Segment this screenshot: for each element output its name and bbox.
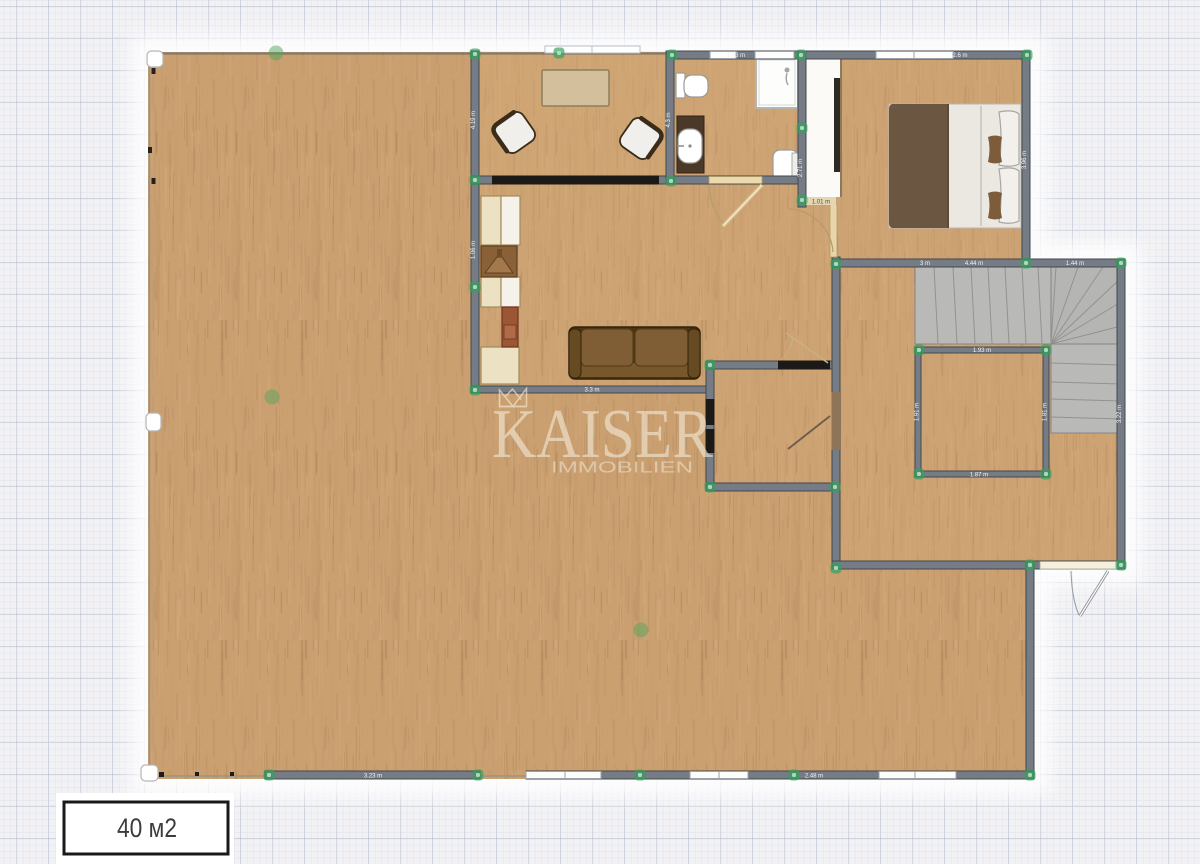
svg-text:1.93 m: 1.93 m (973, 348, 991, 354)
svg-text:1.06 m: 1.06 m (471, 241, 477, 259)
svg-text:4.44 m: 4.44 m (965, 261, 983, 267)
svg-text:1.91 m: 1.91 m (915, 403, 921, 421)
svg-text:4.3 m: 4.3 m (666, 112, 672, 127)
svg-text:1.87 m: 1.87 m (970, 473, 988, 479)
svg-text:3 m: 3 m (920, 261, 930, 267)
svg-text:3.96 m: 3.96 m (1022, 151, 1028, 169)
svg-text:IMMOBILIEN: IMMOBILIEN (551, 460, 693, 477)
svg-text:40 м2: 40 м2 (117, 813, 177, 843)
svg-text:3.22 m: 3.22 m (1117, 405, 1123, 423)
svg-text:3.23 m: 3.23 m (364, 774, 382, 780)
svg-text:2.6 m: 2.6 m (952, 53, 967, 59)
svg-text:3.3 m: 3.3 m (584, 388, 599, 394)
svg-text:2.48 m: 2.48 m (805, 774, 823, 780)
svg-text:1.01 m: 1.01 m (812, 200, 830, 206)
svg-text:1.73 m: 1.73 m (727, 53, 745, 59)
svg-text:4.19 m: 4.19 m (471, 111, 477, 129)
svg-text:1.81 m: 1.81 m (1043, 403, 1049, 421)
svg-text:2.71 m: 2.71 m (798, 159, 804, 177)
svg-text:1.44 m: 1.44 m (1066, 261, 1084, 267)
